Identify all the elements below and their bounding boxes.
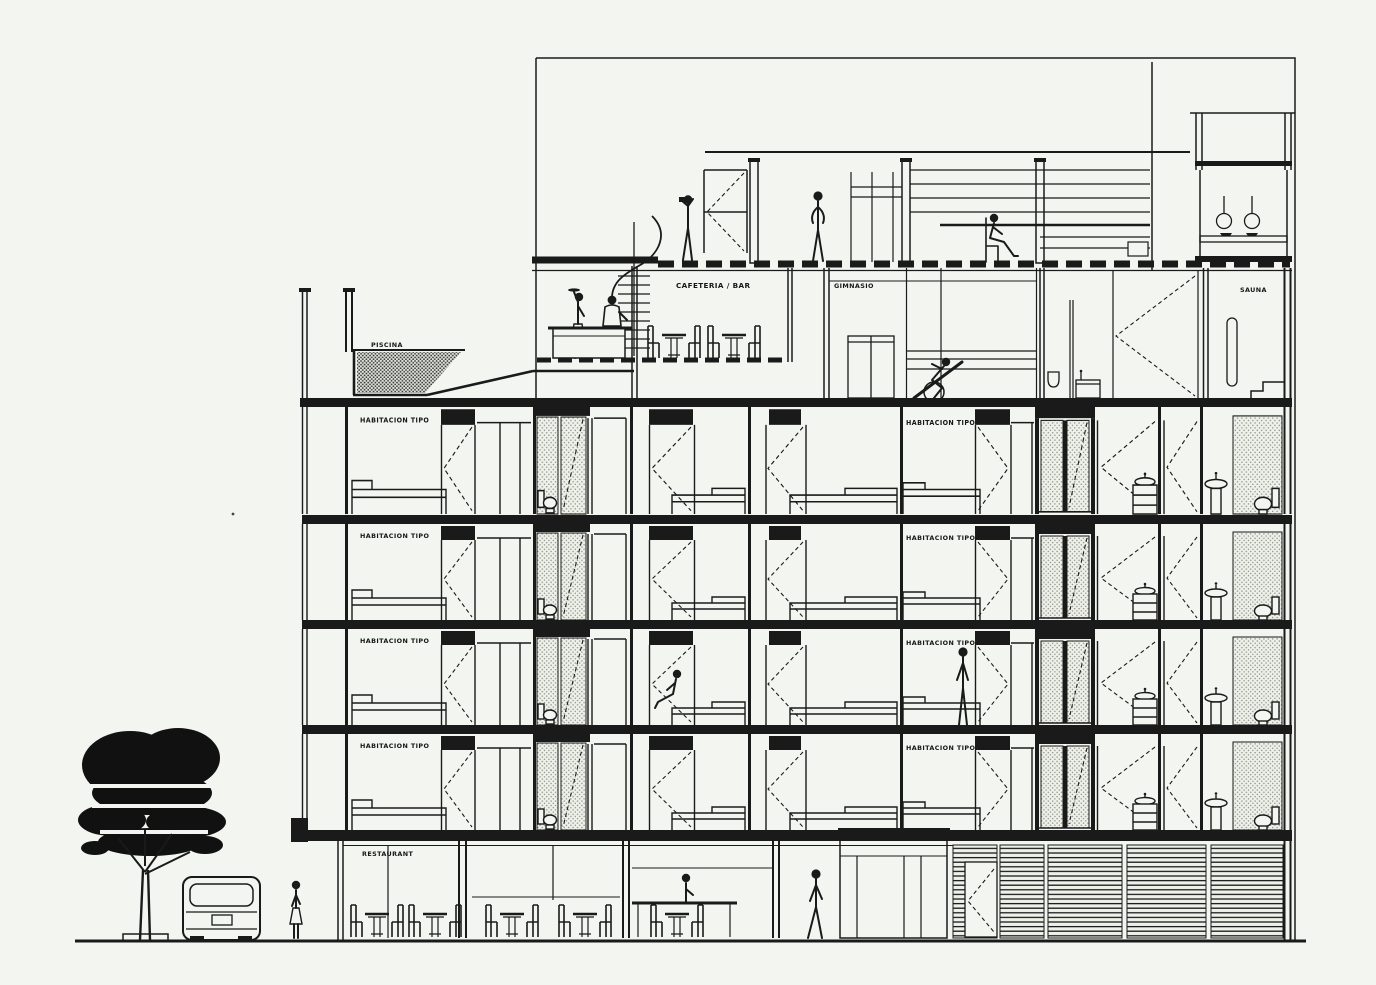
pool-label: PISCINA [371, 341, 403, 349]
sauna-label: SAUNA [1240, 286, 1267, 294]
bar-counter [548, 328, 632, 358]
section-canvas: HABITACION TIPO HABITACION TIPO [0, 0, 1376, 985]
louver-screen [953, 845, 1283, 938]
cafeteria-label: CAFETERIA / BAR [676, 281, 751, 290]
gym-label: GIMNASIO [834, 282, 874, 290]
architectural-section-drawing: HABITACION TIPO HABITACION TIPO [0, 0, 1376, 985]
paper-speck [232, 513, 235, 516]
roof-equipment-box [1128, 242, 1148, 256]
urinal [1048, 372, 1059, 387]
cantilever-foot [291, 818, 308, 842]
garage-door [965, 862, 997, 937]
gym-cabinet [848, 336, 894, 398]
